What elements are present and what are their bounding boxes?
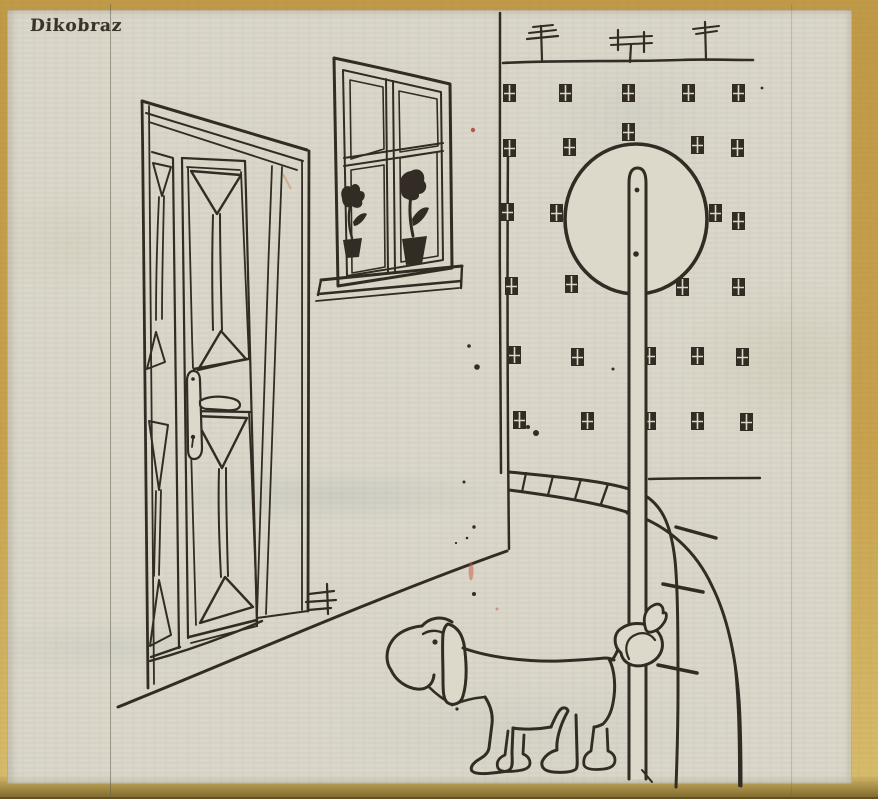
scene-description: Hand-drawn ink cartoon: a long-eared dog… [0,0,1,1]
scanned-page: Dikobraz Hand-drawn ink cartoon: a long-… [0,0,878,799]
newsprint-paper [7,10,852,784]
magazine-masthead: Dikobraz [29,16,122,36]
